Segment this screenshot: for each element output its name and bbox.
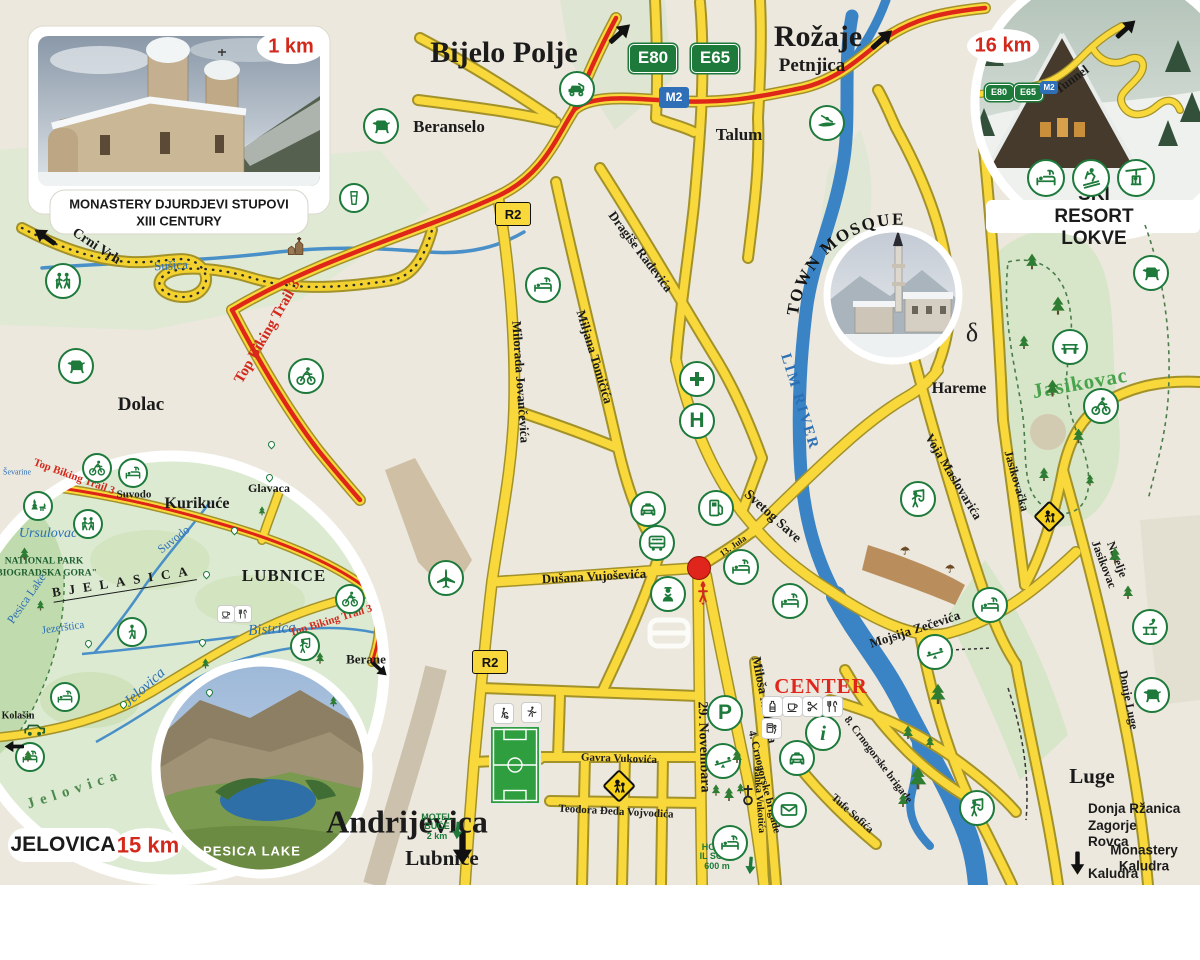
pharmacy-icon — [679, 361, 715, 397]
atm-icon — [762, 719, 781, 738]
tree-icon — [929, 683, 947, 711]
airplane-icon — [428, 560, 464, 596]
bus-icon — [639, 525, 675, 561]
soccer-icon — [494, 704, 513, 723]
route-badge-m2: M2 — [659, 87, 689, 108]
tree-icon — [1108, 547, 1122, 570]
tree-icon — [1050, 296, 1066, 321]
tree-icon — [908, 766, 928, 796]
tree-icon — [902, 725, 914, 745]
tree-icon — [23, 750, 33, 768]
route-badge-e80: E80 — [629, 44, 677, 73]
bed-icon — [118, 458, 148, 488]
tree-icon — [315, 652, 325, 670]
cyclist-icon — [288, 358, 324, 394]
cafe-icon — [218, 606, 234, 622]
police-icon — [650, 576, 686, 612]
direction-arrow — [4, 734, 24, 754]
church-sketch-icon — [284, 234, 310, 260]
route-badge-r2: R2 — [495, 202, 531, 226]
route-badge-e65: E65 — [1014, 84, 1043, 101]
tree-icon — [1122, 585, 1134, 605]
kayak-icon — [809, 105, 845, 141]
bed-icon — [723, 549, 759, 585]
route-badge-m2: M2 — [1040, 81, 1058, 94]
red-dot-icon — [687, 556, 711, 580]
restaurant-icon — [235, 606, 251, 622]
tree-icon — [36, 598, 45, 616]
tree-icon — [258, 503, 266, 521]
cow-icon — [363, 108, 399, 144]
direction-arrow — [445, 821, 465, 841]
route-badge-r2: R2 — [472, 650, 508, 674]
info-icon: i — [805, 715, 841, 751]
route-badge-e80: E80 — [985, 84, 1014, 101]
route-badge-e65: E65 — [691, 44, 739, 73]
tree-icon — [1018, 335, 1030, 355]
bottle-icon — [763, 697, 782, 716]
cyclist-icon — [82, 453, 112, 483]
cyclist-icon — [335, 584, 365, 614]
tow-truck-icon — [559, 71, 595, 107]
chairlift-icon — [1117, 159, 1155, 197]
tree-icon — [1085, 474, 1095, 492]
deer-icon — [23, 491, 53, 521]
taxi-icon — [630, 491, 666, 527]
bed-icon — [772, 583, 808, 619]
jeep-icon — [22, 716, 48, 742]
tree-icon — [731, 749, 743, 769]
berane-town-map: TOWN MOSQUE Bijelo PoljeBeranseloRožajeP… — [0, 0, 1200, 960]
map-canvas: TOWN MOSQUE Bijelo PoljeBeranseloRožajeP… — [0, 0, 1200, 885]
fuel-icon — [698, 490, 734, 526]
tree-icon — [723, 787, 735, 807]
bench-icon — [1052, 329, 1088, 365]
person-red-icon — [690, 580, 716, 606]
picnic-icon — [1132, 609, 1168, 645]
cyclist-icon — [1083, 388, 1119, 424]
tree-icon — [736, 781, 745, 799]
restaurant-icon — [823, 697, 842, 716]
tree-icon — [329, 694, 338, 712]
hikers-icon — [45, 263, 81, 299]
bed-icon — [50, 682, 80, 712]
footer-bar: QR CODE | meCardTOURIST ORGANIZATION BER… — [0, 885, 1200, 960]
waterglass-icon — [339, 183, 369, 213]
fisherman-icon — [959, 790, 995, 826]
soccer-field — [490, 726, 540, 804]
post-icon — [771, 792, 807, 828]
runner-icon — [522, 703, 541, 722]
tree-icon — [1045, 379, 1060, 403]
hikers-icon — [73, 509, 103, 539]
tree-icon — [897, 793, 909, 813]
tree-icon — [925, 736, 935, 754]
direction-arrow — [738, 856, 758, 876]
tree-icon — [19, 547, 30, 566]
skier-icon — [1072, 159, 1110, 197]
cow-icon — [1133, 255, 1169, 291]
map-base-art: TOWN MOSQUE — [0, 0, 1200, 885]
bed-icon — [1027, 159, 1065, 197]
fisherman-icon — [900, 481, 936, 517]
cow-icon — [1134, 677, 1170, 713]
tree-icon — [1072, 428, 1085, 449]
direction-arrow — [1064, 852, 1087, 876]
hospital-icon: H — [679, 403, 715, 439]
parking-icon: P — [707, 695, 743, 731]
cafe-icon — [783, 697, 802, 716]
seesaw-icon — [917, 634, 953, 670]
tree-icon — [1038, 467, 1050, 487]
bed-icon — [972, 587, 1008, 623]
cow-icon — [58, 348, 94, 384]
tree-icon — [201, 656, 210, 674]
hiker-icon — [117, 617, 147, 647]
tree-icon — [1025, 253, 1039, 276]
scissors-icon — [803, 697, 822, 716]
bed-icon — [525, 267, 561, 303]
tree-icon — [711, 784, 721, 802]
